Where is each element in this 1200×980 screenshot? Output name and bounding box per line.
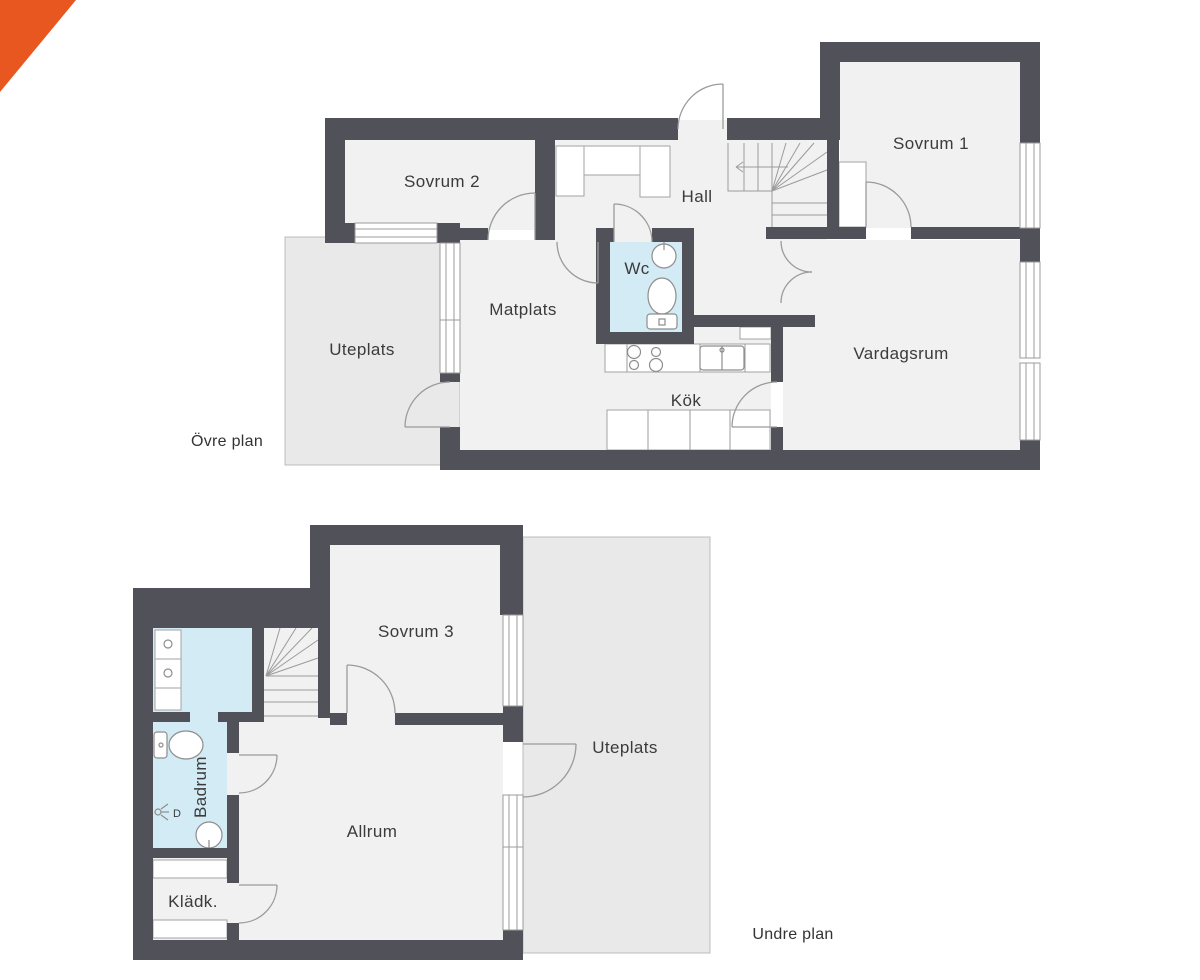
lower-floor-plan: D <box>133 525 834 960</box>
badrum-sink-icon <box>196 822 222 848</box>
sovrum1-closet <box>839 162 866 227</box>
room-label-uteplats-upper: Uteplats <box>329 340 395 359</box>
room-label-allrum: Allrum <box>347 822 398 841</box>
room-label-uteplats-lower: Uteplats <box>592 738 658 757</box>
dryer-icon <box>155 659 181 688</box>
room-label-matplats: Matplats <box>489 300 556 319</box>
window <box>1020 143 1040 228</box>
hall-wardrobe <box>584 146 640 175</box>
window <box>1020 262 1040 358</box>
kitchen-niche <box>740 327 771 339</box>
room-label-wc: Wc <box>624 259 649 278</box>
window <box>1020 363 1040 440</box>
room-label-kladk: Klädk. <box>168 892 218 911</box>
window <box>355 223 437 243</box>
plan-label-undre: Undre plan <box>752 926 833 943</box>
washing-machine-icon <box>155 630 181 659</box>
hall-wardrobe <box>556 146 584 196</box>
room-label-kok: Kök <box>671 391 702 410</box>
window <box>440 243 460 373</box>
kitchen-island <box>607 410 770 450</box>
plan-label-ovre: Övre plan <box>191 432 263 450</box>
window <box>503 615 523 706</box>
room-label-vardagsrum: Vardagsrum <box>853 344 948 363</box>
room-label-hall: Hall <box>682 187 713 206</box>
floor-plan-page: Sovrum 2 Hall Sovrum 1 Wc Matplats Utepl… <box>0 0 1200 980</box>
room-label-sovrum2: Sovrum 2 <box>404 172 480 191</box>
brand-corner-accent <box>0 0 76 92</box>
upper-floor-plan: Sovrum 2 Hall Sovrum 1 Wc Matplats Utepl… <box>191 42 1040 470</box>
kitchen-sink-icon <box>700 346 744 370</box>
kladk-shelf <box>153 860 227 878</box>
laundry-bench <box>155 688 181 710</box>
room-label-badrum: Badrum <box>191 756 210 818</box>
floor-plan-drawing: Sovrum 2 Hall Sovrum 1 Wc Matplats Utepl… <box>0 0 1200 980</box>
wc-toilet-icon <box>647 278 677 329</box>
lower-windows <box>503 615 523 930</box>
window <box>503 795 523 930</box>
badrum-toilet-icon <box>154 731 203 759</box>
room-label-sovrum3: Sovrum 3 <box>378 622 454 641</box>
hall-wardrobe <box>640 146 670 197</box>
room-label-sovrum1: Sovrum 1 <box>893 134 969 153</box>
kladk-shelf <box>153 920 227 938</box>
shower-label: D <box>173 808 181 820</box>
